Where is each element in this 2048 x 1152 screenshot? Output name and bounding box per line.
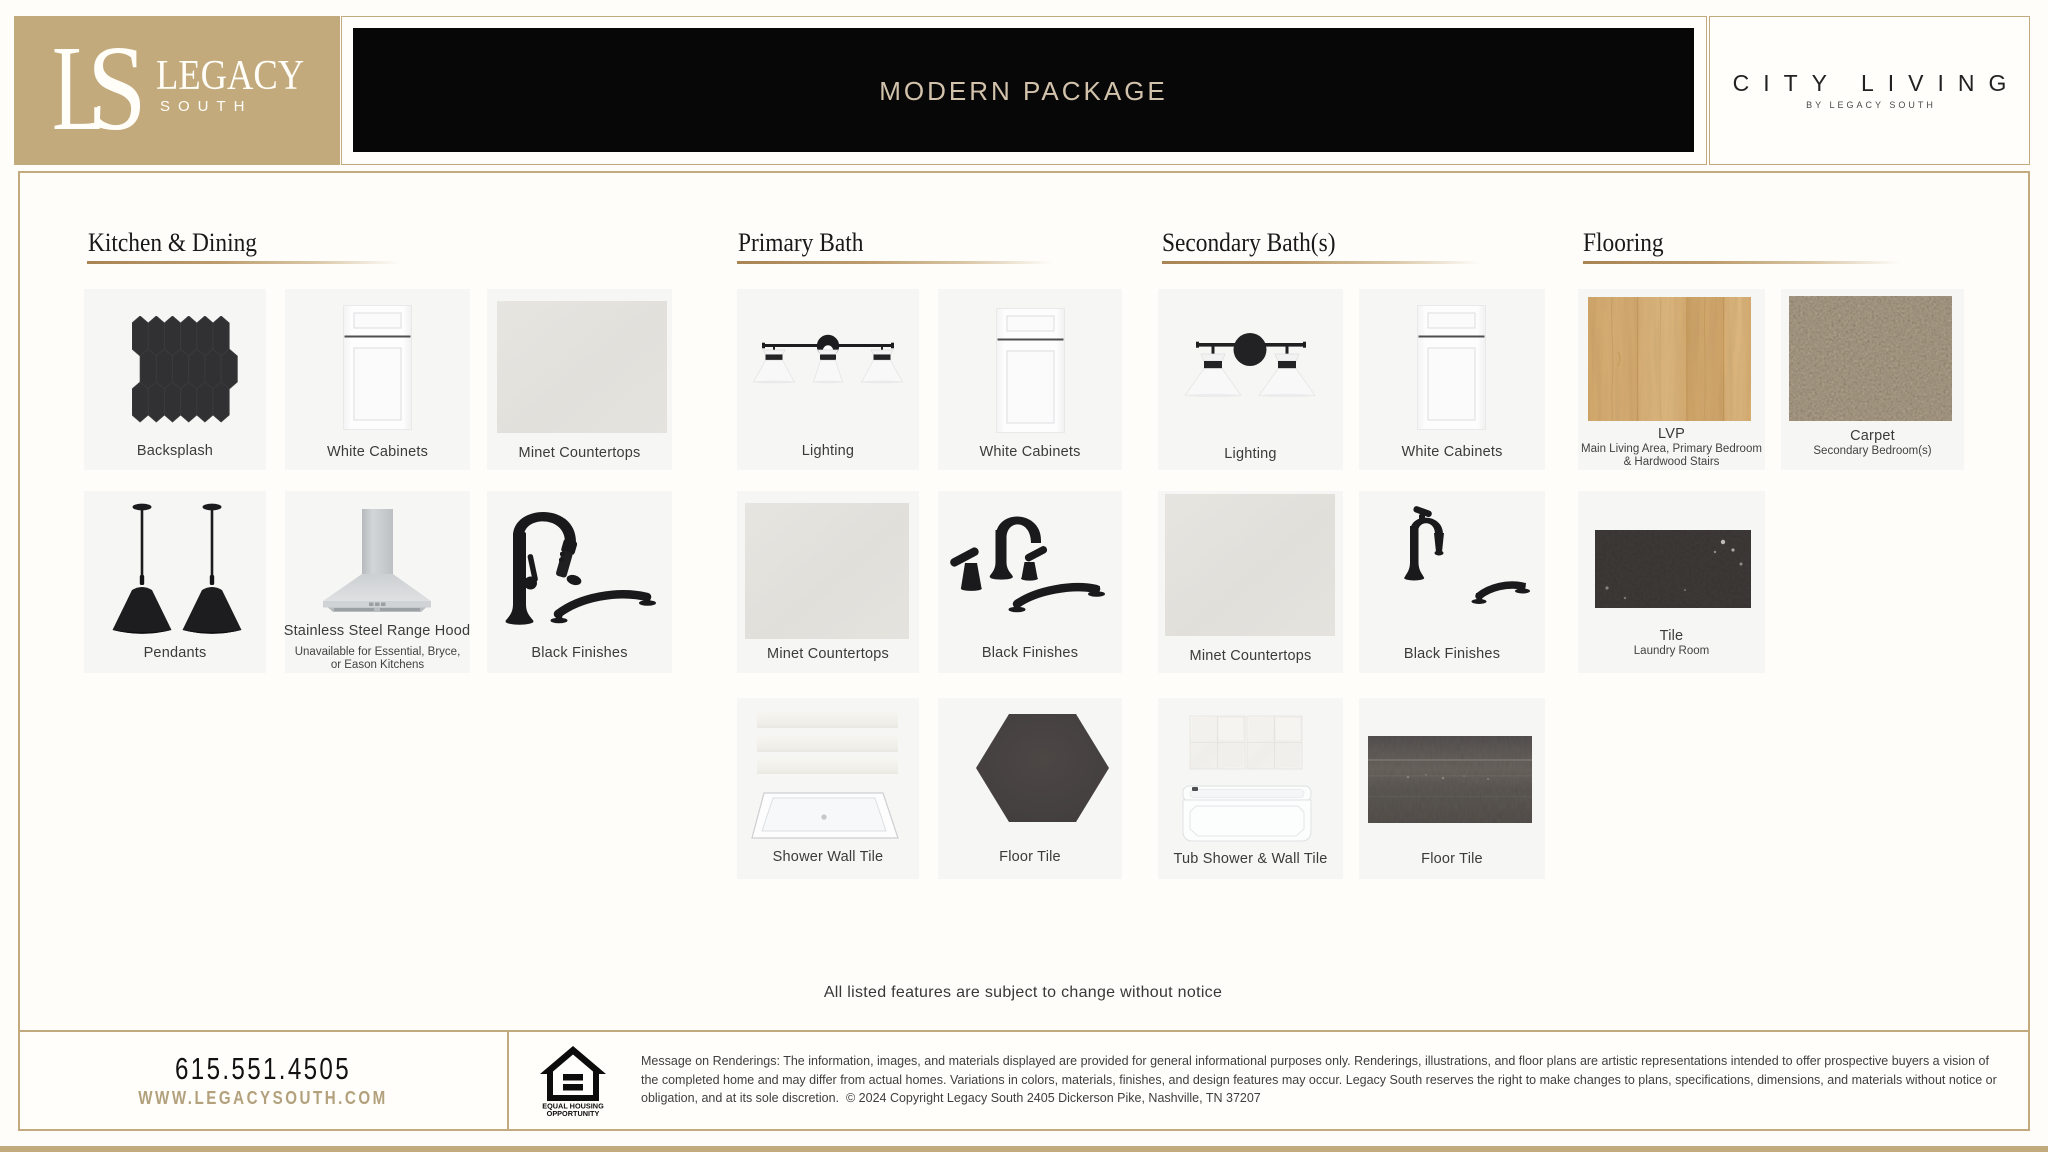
svg-text:OPPORTUNITY: OPPORTUNITY [547,1109,600,1118]
